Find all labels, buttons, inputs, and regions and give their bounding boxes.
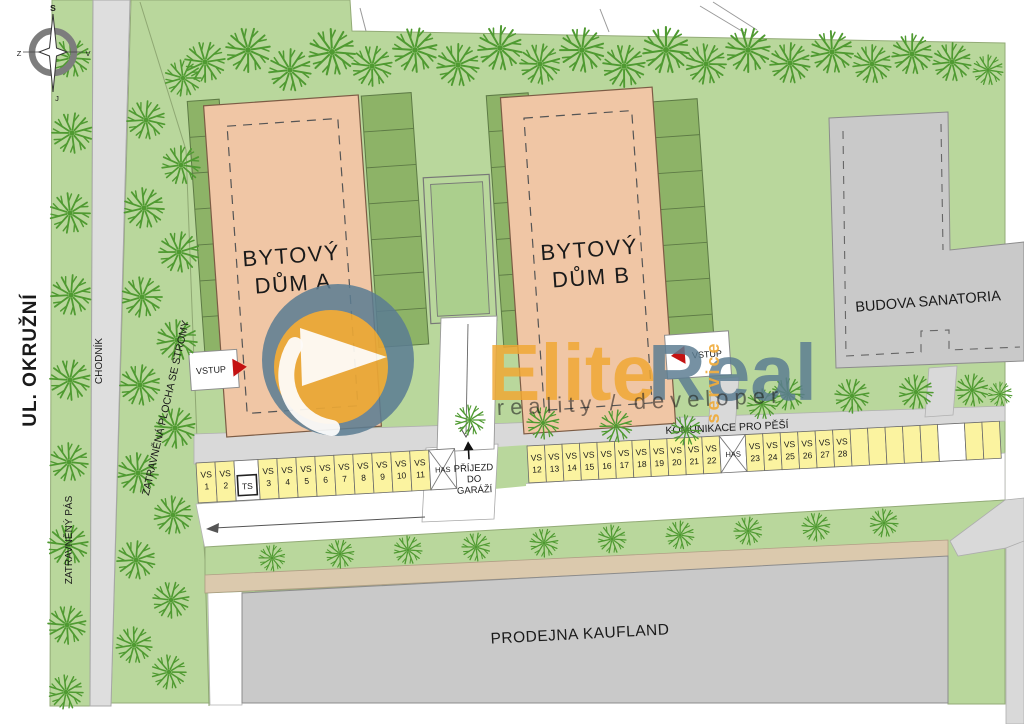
parking-stall: VS4 <box>277 457 298 498</box>
stall-number: 1 <box>204 481 210 491</box>
stall-number: 8 <box>361 473 367 483</box>
stall-prefix: VS <box>784 439 796 450</box>
stall-prefix: VS <box>766 440 778 451</box>
stall-prefix: VS <box>338 461 350 472</box>
parking-stall: VS7 <box>334 454 355 495</box>
parking-stall: VS15 <box>579 442 598 480</box>
stall-prefix: VS <box>705 443 717 454</box>
street-okruzni-label: UL. OKRUŽNÍ <box>19 293 41 426</box>
parking-stall: VS3 <box>258 458 279 499</box>
parking-stall: VS9 <box>372 452 393 493</box>
grass-strip-west <box>50 0 93 706</box>
garage-entry-label-2: DO <box>467 474 482 486</box>
stall-prefix: VS <box>635 447 647 458</box>
parking-stall: VS22 <box>702 436 721 474</box>
stall-number: 9 <box>380 471 386 481</box>
compass-west: Z <box>17 49 22 58</box>
parking-stall: VS21 <box>684 437 703 475</box>
stall-prefix: VS <box>376 459 388 470</box>
stall-prefix: VS <box>670 445 682 456</box>
parking-stall: VS14 <box>562 443 581 481</box>
stall-prefix: VS <box>414 457 426 468</box>
parking-stall: VS10 <box>391 451 412 492</box>
stall-number: 26 <box>803 450 813 460</box>
chodnik-label: CHODNÍK <box>92 338 105 384</box>
stall-number: 6 <box>323 475 329 485</box>
stall-prefix: VS <box>219 468 231 479</box>
parking-stall: VS27 <box>815 430 834 468</box>
parking-stall: VS26 <box>798 431 817 469</box>
parking-stall <box>982 421 1001 459</box>
stall-number: 2 <box>223 480 229 490</box>
parking-stall: VS16 <box>597 441 616 479</box>
logo-service: service <box>703 340 723 423</box>
green-wedge <box>494 445 528 489</box>
stall-prefix: VS <box>819 437 831 448</box>
stall-number: 3 <box>266 478 272 488</box>
ts-label: TS <box>242 481 254 492</box>
stall-number: 13 <box>549 463 559 473</box>
parking-stall: VS19 <box>649 439 668 477</box>
site-plan: PRODEJNA KAUFLAND BYTOVÝ DŮM A VSTUP BYT… <box>0 0 1024 724</box>
parking-stall: VS18 <box>632 440 651 478</box>
hydrant-box: HAS <box>429 449 457 490</box>
parking-stall <box>868 427 887 465</box>
parking-stall <box>964 422 983 460</box>
stall-prefix: VS <box>319 462 331 473</box>
parking-stall: VS2 <box>215 461 236 502</box>
stall-number: 25 <box>785 451 795 461</box>
stall-prefix: VS <box>300 464 312 475</box>
path-connector-sanatoria <box>925 366 957 417</box>
parking-stall: VS5 <box>296 456 317 497</box>
stall-number: 14 <box>567 462 577 472</box>
stall-prefix: VS <box>583 449 595 460</box>
grass-strip-label: ZATRAVNĚNÝ PÁS <box>62 495 75 584</box>
parking-stall: VS24 <box>763 433 782 471</box>
parking-stall <box>937 423 966 461</box>
stall-prefix: VS <box>836 436 848 447</box>
stall-prefix: VS <box>548 451 560 462</box>
stall-number: 20 <box>672 457 682 467</box>
stall-prefix: VS <box>200 469 212 480</box>
transformer-station: TS <box>234 460 260 501</box>
stall-number: 24 <box>768 452 778 462</box>
stall-number: 17 <box>619 460 629 470</box>
stall-number: 16 <box>602 461 612 471</box>
site-plan-svg: PRODEJNA KAUFLAND BYTOVÝ DŮM A VSTUP BYT… <box>0 0 1024 724</box>
parking-stall <box>902 425 921 463</box>
stall-prefix: VS <box>600 449 612 460</box>
ramp-enclosure <box>423 174 497 323</box>
stall-number: 12 <box>532 464 542 474</box>
stall-number: 28 <box>838 448 848 458</box>
stall-number: 11 <box>416 469 426 479</box>
garage-entry-label-3: GARÁŽÍ <box>457 484 493 497</box>
parking-stall: VS28 <box>833 429 852 467</box>
stall-prefix: VS <box>801 438 813 449</box>
stall-number: 19 <box>654 458 664 468</box>
stall-number: 23 <box>750 453 760 463</box>
parking-stall: VS8 <box>353 453 374 494</box>
stall-number: 18 <box>637 459 647 469</box>
parking-stall: VS1 <box>196 462 217 503</box>
stall-number: 27 <box>820 449 830 459</box>
compass-north: S <box>50 3 56 13</box>
stall-prefix: VS <box>281 465 293 476</box>
hydrant-box: HAS <box>719 435 747 473</box>
parking-stall: VS17 <box>614 441 633 479</box>
compass-south: J <box>55 94 59 103</box>
stall-number: 4 <box>285 477 291 487</box>
parking-stall: VS12 <box>527 445 546 483</box>
stall-prefix: VS <box>688 444 700 455</box>
logo-emblem-icon <box>262 284 414 436</box>
stall-prefix: VS <box>565 450 577 461</box>
stall-prefix: VS <box>618 448 630 459</box>
has-label: HAS <box>725 449 741 459</box>
parking-stall: VS23 <box>745 434 764 472</box>
compass-east: V <box>85 49 90 58</box>
stall-prefix: VS <box>357 460 369 471</box>
parking-stall: VS6 <box>315 455 336 496</box>
stall-number: 22 <box>707 455 717 465</box>
stall-prefix: VS <box>262 466 274 477</box>
stall-number: 7 <box>342 474 348 484</box>
parking-stall <box>850 428 869 466</box>
parking-stall <box>885 426 904 464</box>
stall-prefix: VS <box>653 446 665 457</box>
stall-number: 5 <box>304 476 310 486</box>
has-label: HAS <box>435 465 451 475</box>
parking-stall <box>920 424 939 462</box>
stall-prefix: VS <box>530 452 542 463</box>
stall-prefix: VS <box>749 441 761 452</box>
parking-stall: VS13 <box>544 444 563 482</box>
stall-number: 10 <box>397 470 407 481</box>
stall-prefix: VS <box>395 458 407 469</box>
parking-stall: VS11 <box>410 450 431 491</box>
stall-number: 15 <box>584 462 594 472</box>
parking-stall: VS25 <box>780 432 799 470</box>
entrance-a-label: VSTUP <box>196 364 227 376</box>
stall-number: 21 <box>689 456 699 466</box>
